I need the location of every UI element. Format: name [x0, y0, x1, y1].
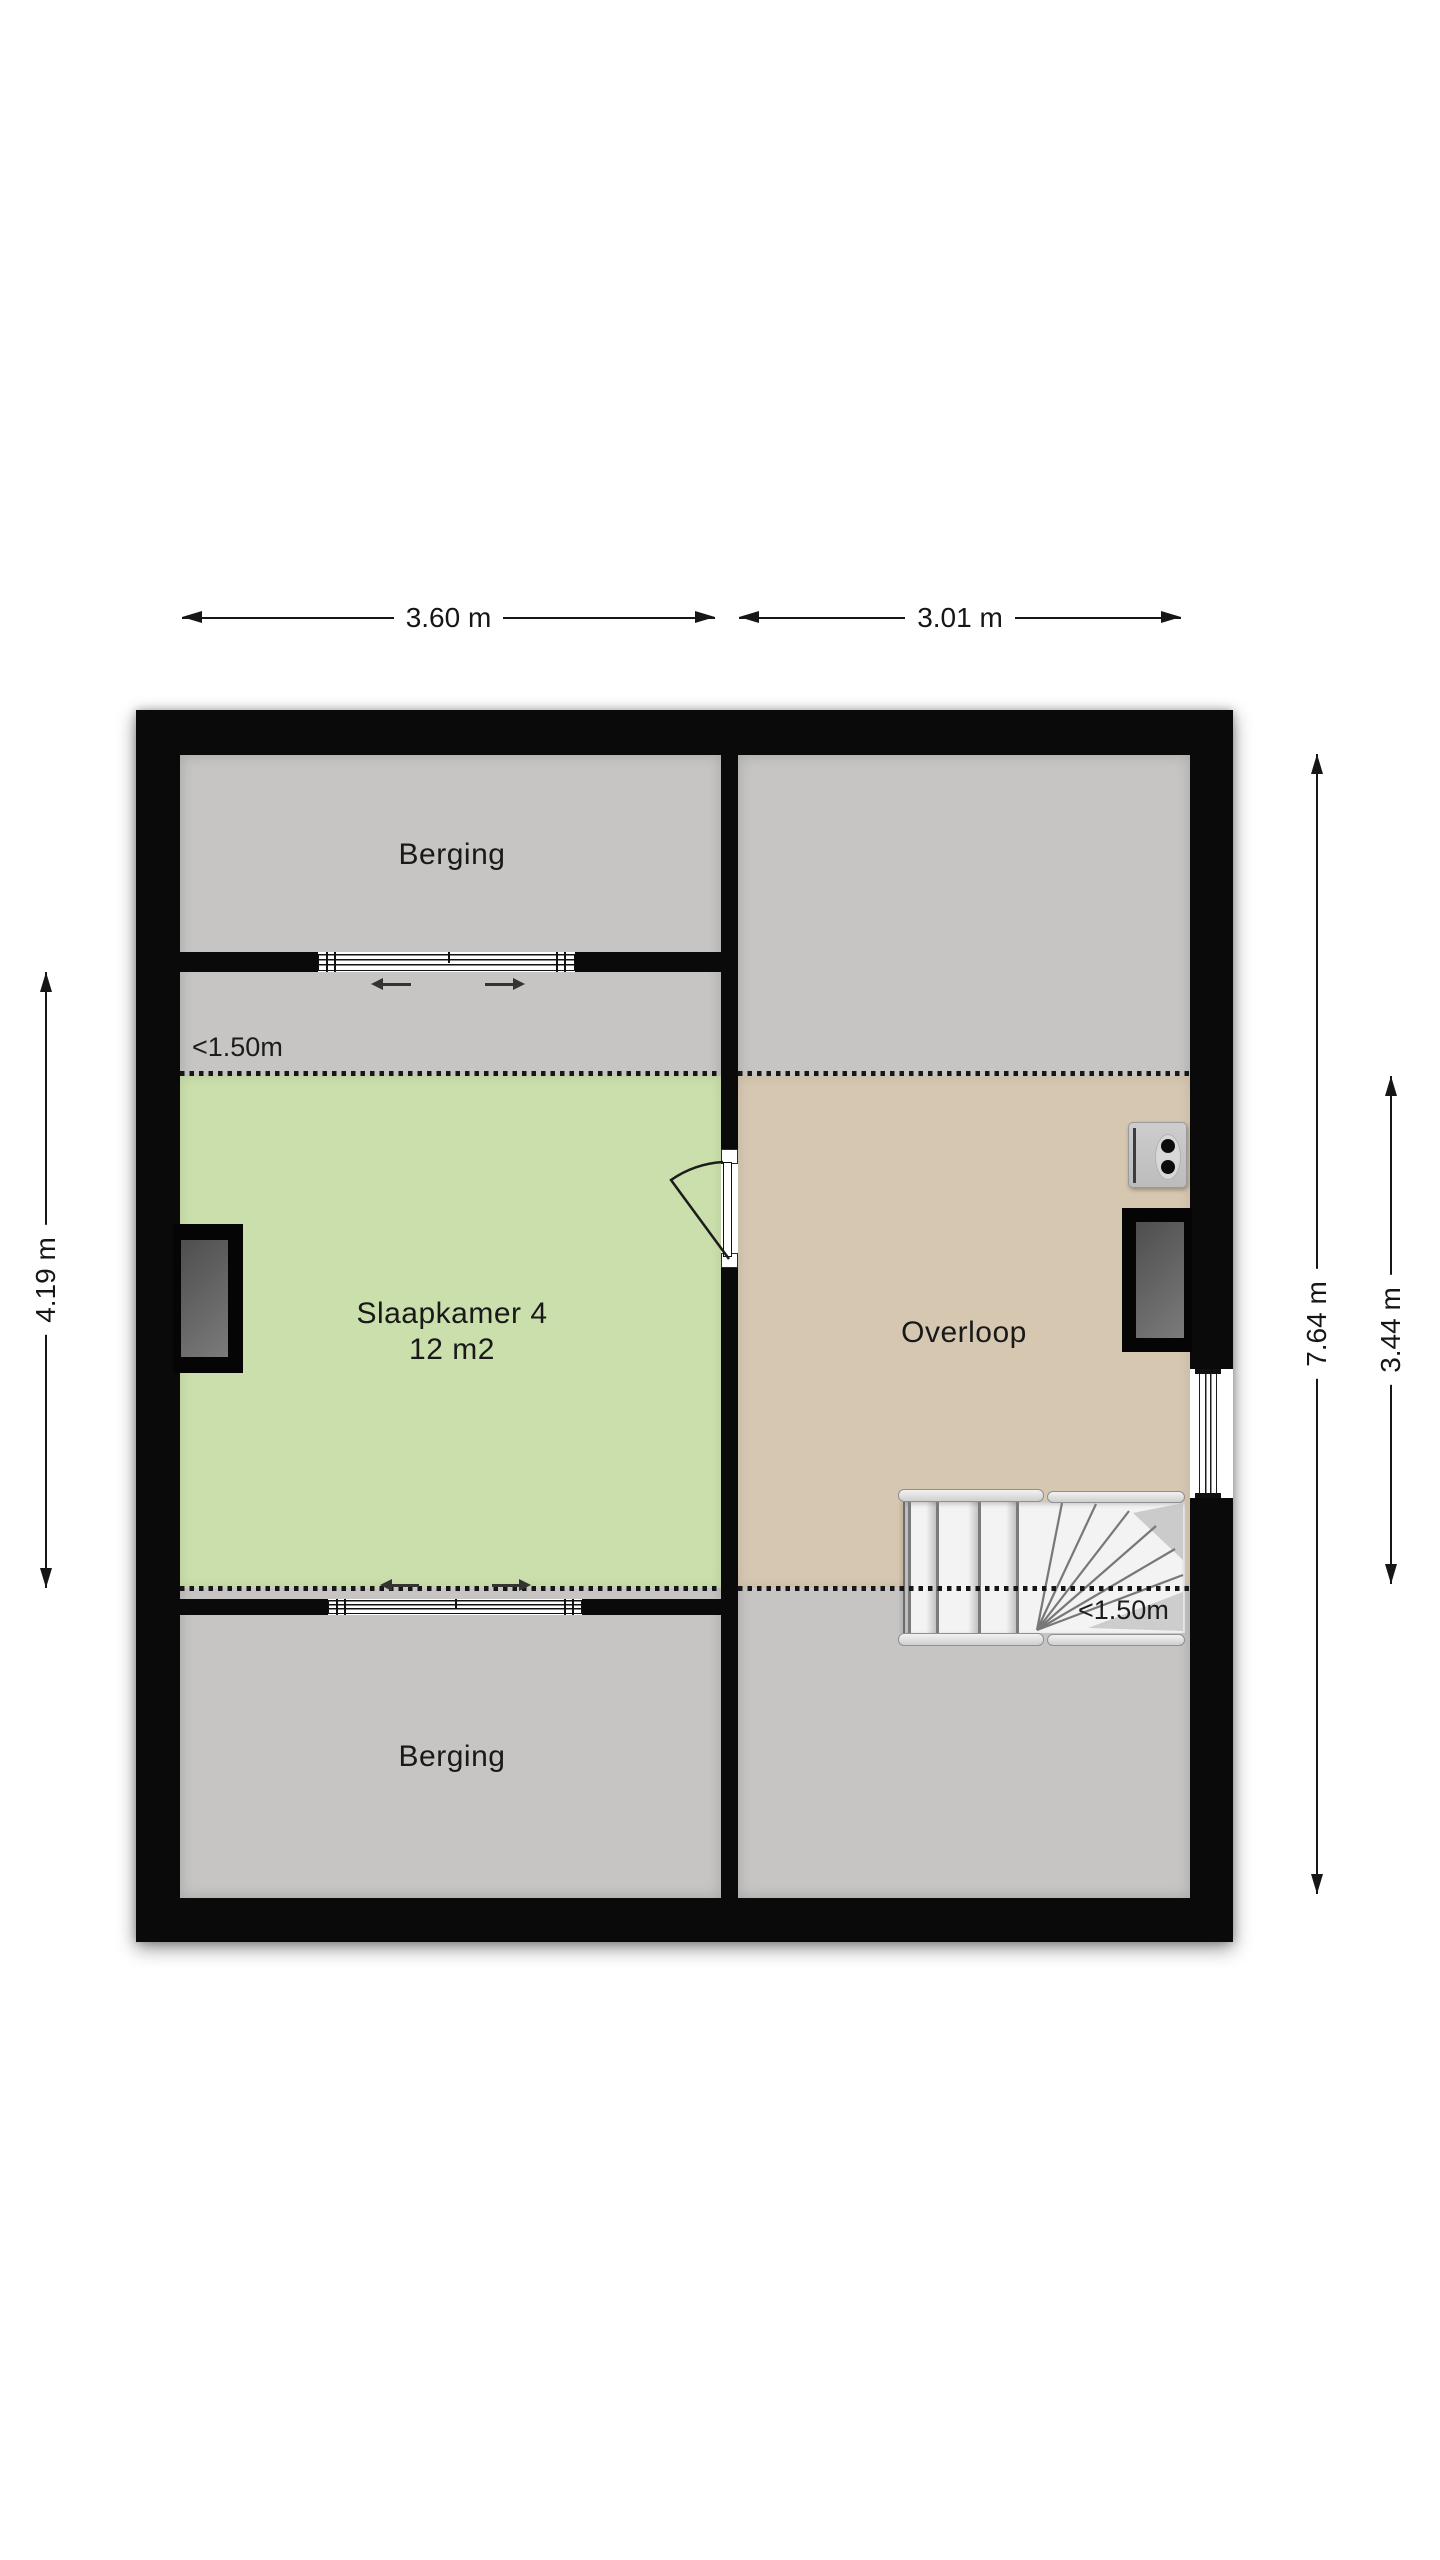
arrow-left-icon: [182, 611, 202, 623]
arrow-down-icon: [40, 1568, 52, 1588]
sliding-door-track: [318, 954, 575, 971]
right-wall-window-glass: [1136, 1222, 1184, 1338]
sliding-door-tick: [336, 1599, 338, 1615]
arrow-up-icon: [40, 972, 52, 992]
slide-arrow-right-icon: [492, 1584, 519, 1587]
sliding-door-tick: [572, 1599, 574, 1615]
room-label-overloop: Overloop: [901, 1315, 1027, 1351]
dimension-value: 7.64 m: [1297, 1269, 1337, 1379]
slide-arrow-left-icon: [383, 983, 411, 986]
arrow-down-icon: [1385, 1564, 1397, 1584]
dimension-value: 3.01 m: [905, 602, 1015, 634]
ventilation-unit: [1128, 1122, 1187, 1188]
floorplan-canvas: Berging Slaapkamer 4 12 m2 Overloop Berg…: [0, 0, 1440, 2560]
left-wall-window: [173, 1224, 243, 1373]
headroom-label-right: <1.50m: [1078, 1595, 1169, 1626]
room-label-berging-bottom: Berging: [399, 1739, 506, 1775]
ventilation-unit-line: [1133, 1128, 1136, 1183]
dimension-right-full: 7.64 m: [1304, 754, 1330, 1894]
headroom-dotted-line: [180, 1071, 721, 1076]
arrow-right-icon: [1161, 611, 1181, 623]
sliding-door-tick: [455, 1599, 457, 1608]
dimension-right-partial: 3.44 m: [1378, 1076, 1404, 1584]
dimension-value: 3.44 m: [1371, 1275, 1411, 1385]
ventilation-unit-dot: [1161, 1139, 1175, 1153]
arrow-up-icon: [1385, 1076, 1397, 1096]
sliding-door-bottom: [328, 1599, 582, 1615]
ventilation-unit-dot: [1161, 1160, 1175, 1174]
stair-rail: [898, 1633, 1044, 1646]
headroom-label-left: <1.50m: [192, 1032, 283, 1063]
room-label-slaapkamer: Slaapkamer 4 12 m2: [356, 1296, 547, 1368]
slide-arrow-left-icon: [392, 1584, 419, 1587]
room-label-slaapkamer-name: Slaapkamer 4: [356, 1296, 547, 1332]
arrow-down-icon: [1311, 1874, 1323, 1894]
sliding-door-tick: [344, 1599, 346, 1615]
arrow-up-icon: [1311, 754, 1323, 774]
stair-rail: [1047, 1634, 1185, 1646]
sliding-door-tick: [564, 1599, 566, 1615]
room-label-slaapkamer-area: 12 m2: [356, 1332, 547, 1368]
arrow-right-icon: [695, 611, 715, 623]
stair-rail: [898, 1489, 1044, 1502]
headroom-dotted-line: [180, 1586, 721, 1591]
sliding-door-tick: [556, 952, 558, 972]
dimension-top-left: 3.60 m: [182, 603, 715, 633]
window-cap: [1195, 1493, 1221, 1498]
dimension-value: 3.60 m: [394, 602, 504, 634]
room-label-berging-top: Berging: [399, 837, 506, 873]
dimension-top-right: 3.01 m: [739, 603, 1181, 633]
headroom-dotted-line: [738, 1586, 1190, 1591]
arrow-left-icon: [739, 611, 759, 623]
right-wall-opening-window: [1199, 1373, 1217, 1494]
sliding-door-top: [318, 952, 575, 972]
sliding-door-tick: [448, 952, 450, 963]
headroom-dotted-line: [738, 1071, 1190, 1076]
sliding-door-tick: [326, 952, 328, 972]
window-cap: [1195, 1369, 1221, 1374]
stair-rail: [1047, 1491, 1185, 1503]
dimension-left: 4.19 m: [33, 972, 59, 1588]
dimension-value: 4.19 m: [26, 1225, 66, 1335]
left-wall-window-glass: [181, 1240, 228, 1357]
slaapkamer-door-swing: [620, 1100, 800, 1340]
sliding-door-tick: [564, 952, 566, 972]
slide-arrow-right-icon: [485, 983, 513, 986]
stair-winders: [898, 1490, 1190, 1650]
right-wall-window: [1122, 1208, 1192, 1352]
sliding-door-tick: [334, 952, 336, 972]
